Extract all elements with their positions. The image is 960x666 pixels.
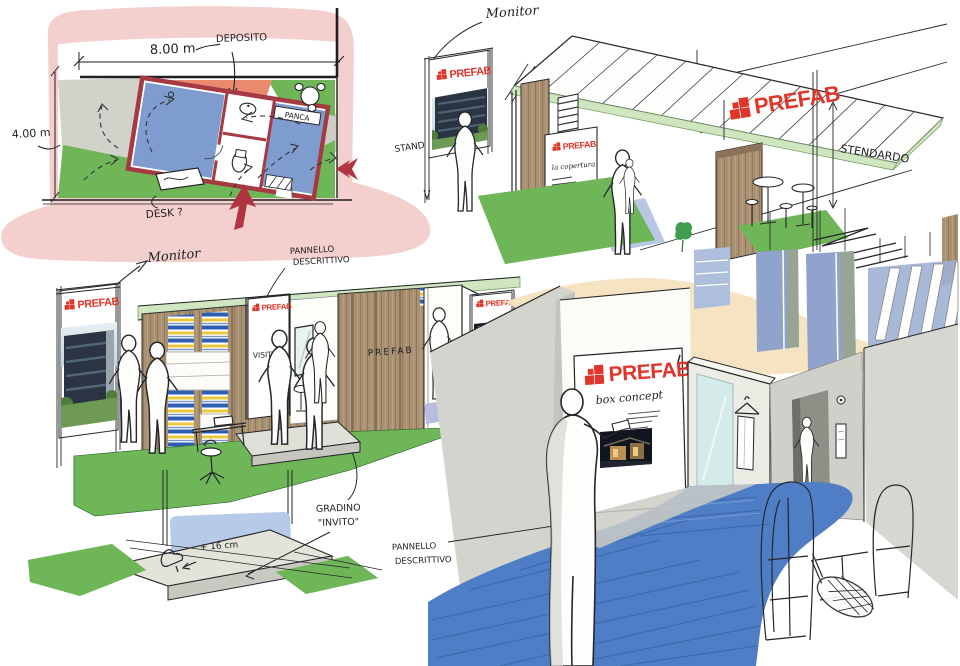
- interior-sketch: PREFAB box concept PANNELLO DESCRITTIVO: [392, 208, 958, 666]
- svg-text:PREFAB: PREFAB: [261, 302, 292, 313]
- dimension-width-label: 8.00 m: [150, 41, 196, 58]
- pannello-label: DESCRITTIVO: [293, 255, 351, 268]
- pannello-label: PANNELLO: [392, 541, 437, 553]
- dimension-height-label: 4.00 m: [11, 126, 50, 141]
- house-photo: [600, 428, 652, 468]
- pannello-label: DESCRITTIVO: [395, 555, 452, 567]
- deposito-label: DEPOSITO: [216, 32, 268, 45]
- gradino-label: GRADINO: [316, 502, 361, 515]
- monitor-label: Monitor: [484, 3, 540, 22]
- monitor-panel: PREFAB: [56, 282, 122, 468]
- towel: [737, 416, 754, 470]
- room-bath-top: [223, 96, 270, 138]
- gradino-label: "INVITO": [318, 517, 360, 529]
- racket-sketch: [794, 554, 883, 626]
- plant-icon: [675, 222, 692, 252]
- sketch-canvas: 8.00 m DEPOSITO 4.00 m PANCA: [0, 0, 960, 666]
- wall-tag: [836, 424, 846, 458]
- exterior-sketch: Monitor PREFAB STAND: [394, 3, 958, 286]
- stand-label: STAND: [394, 141, 425, 155]
- floor-plan-sketch: 8.00 m DEPOSITO 4.00 m PANCA: [1, 6, 430, 262]
